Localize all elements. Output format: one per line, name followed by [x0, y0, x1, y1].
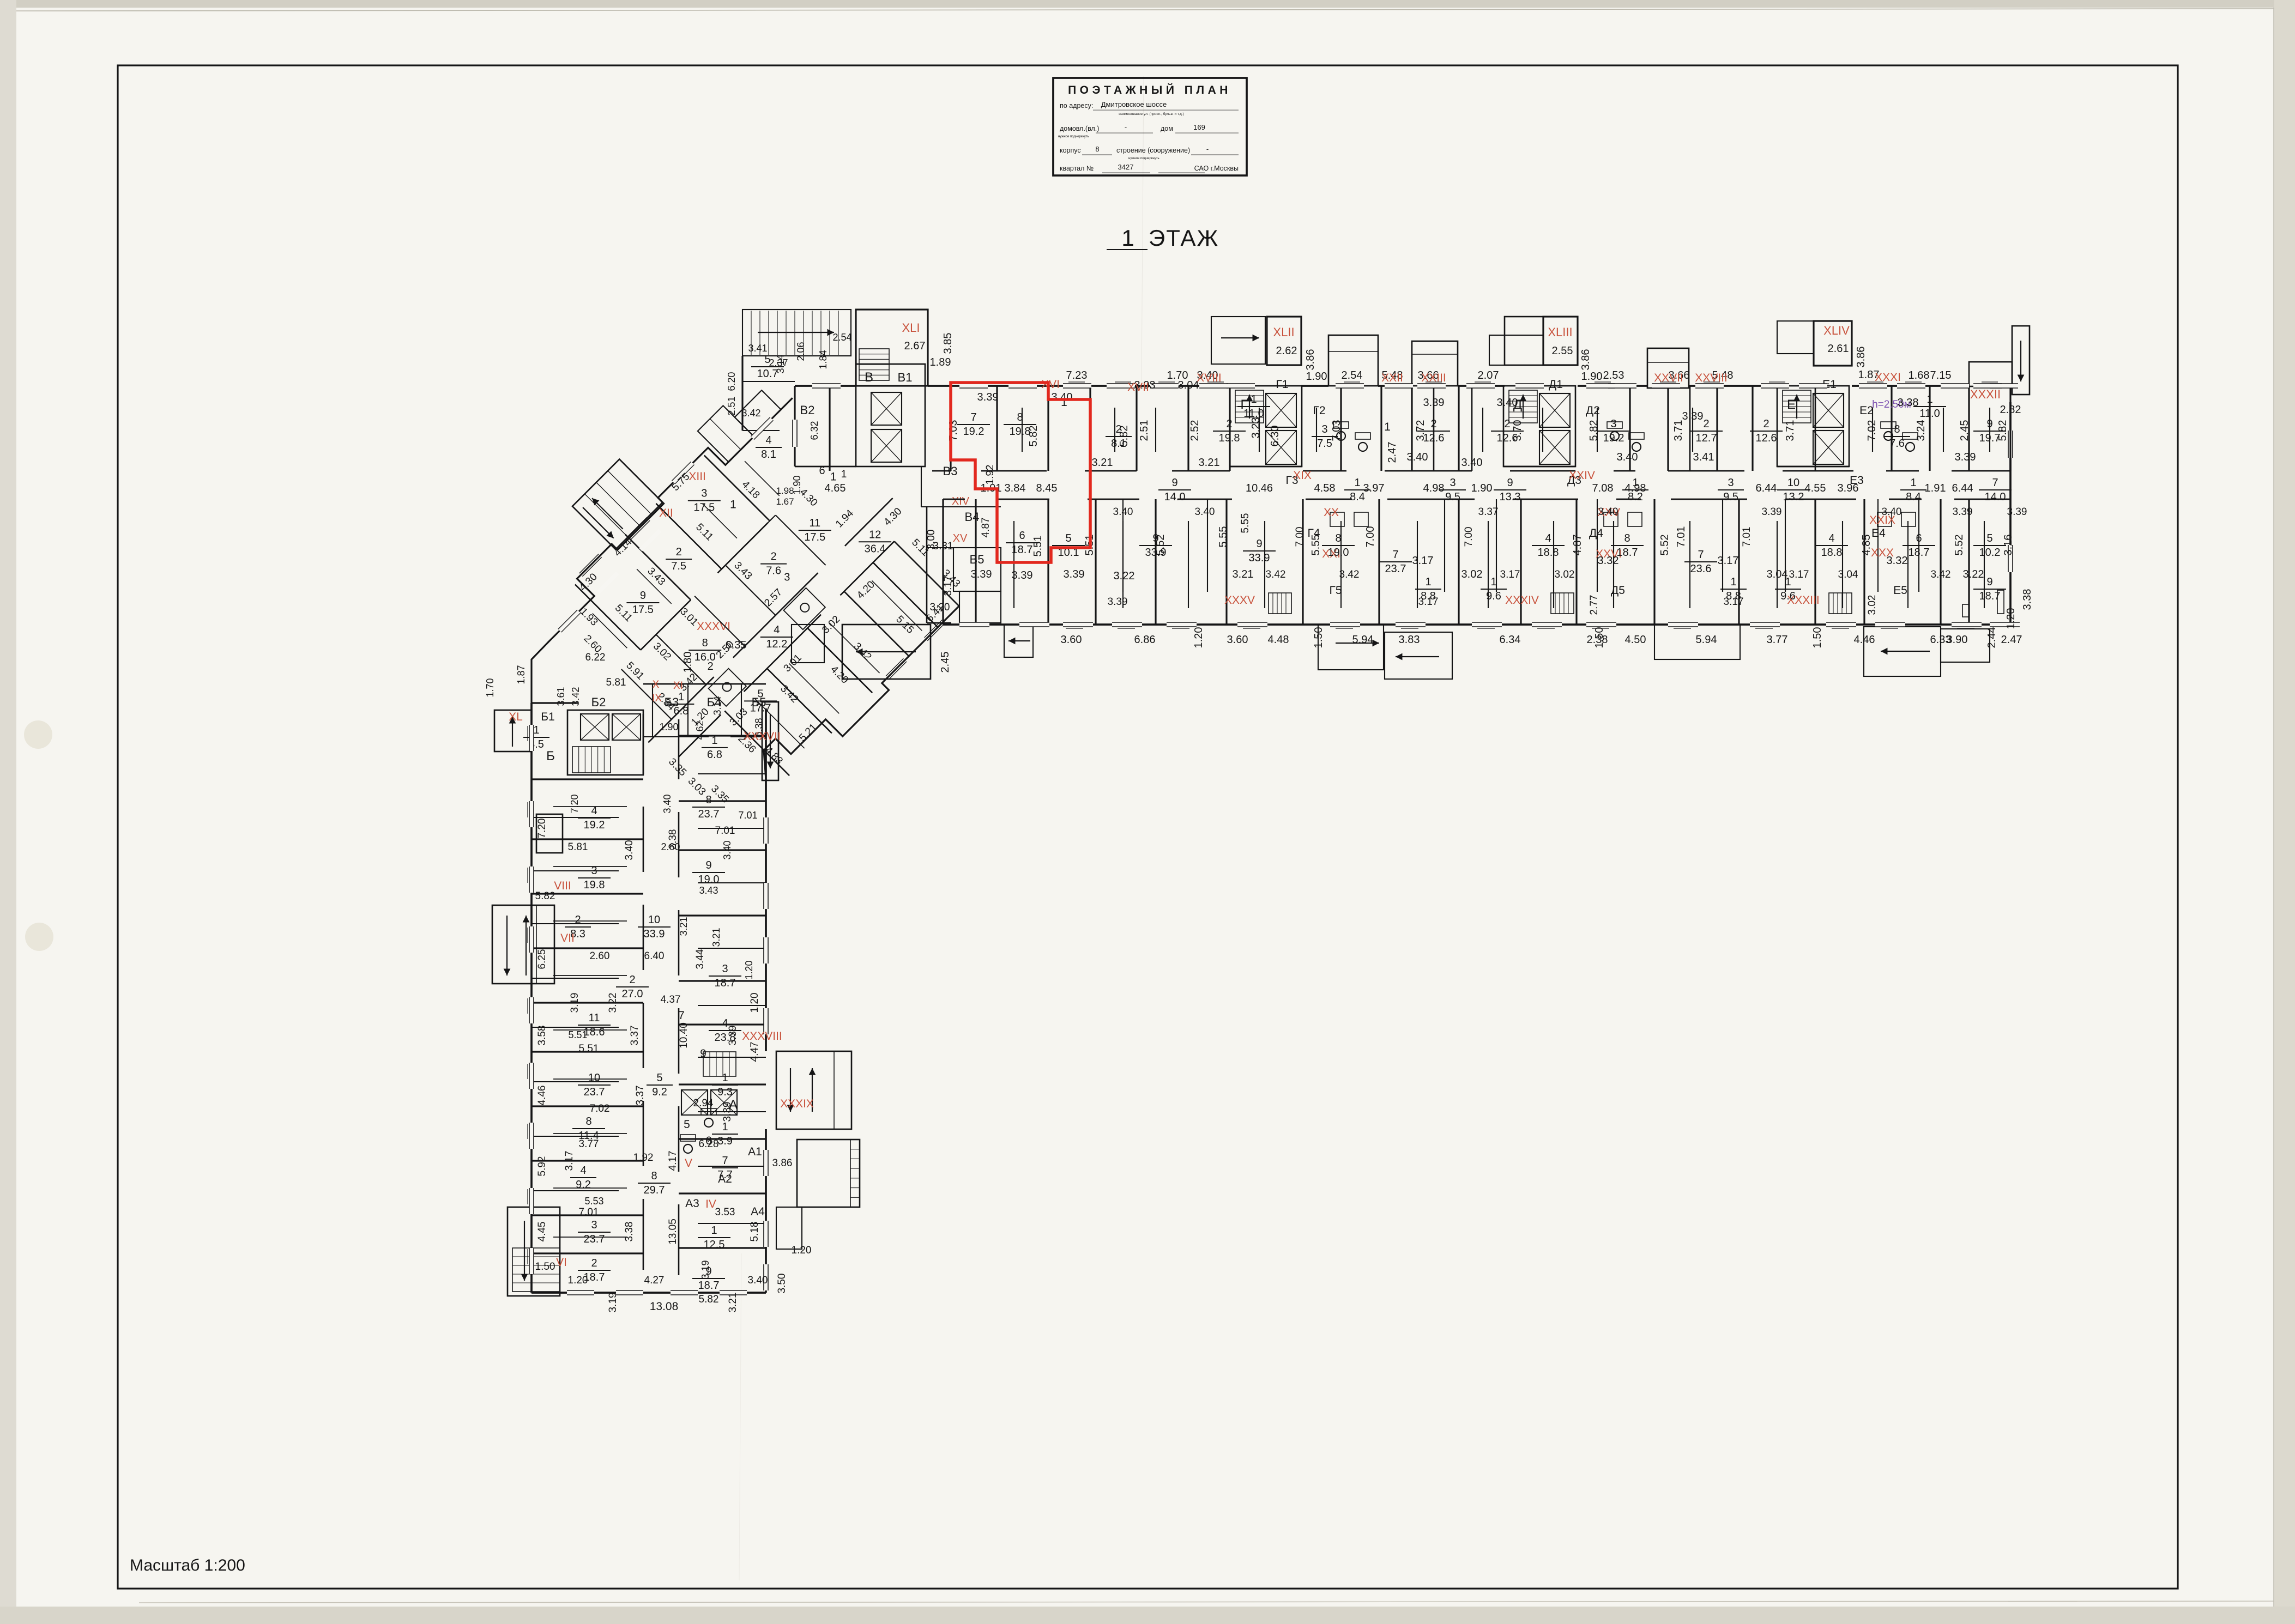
svg-text:5.52: 5.52	[1659, 535, 1671, 556]
svg-text:9: 9	[705, 859, 711, 871]
svg-text:IV: IV	[705, 1198, 716, 1210]
svg-text:5.55: 5.55	[1240, 513, 1251, 534]
svg-text:3.77: 3.77	[579, 1138, 599, 1150]
svg-text:5: 5	[684, 1118, 690, 1131]
svg-text:5.81: 5.81	[606, 677, 626, 688]
svg-text:1.50: 1.50	[1593, 627, 1605, 649]
svg-text:XL: XL	[509, 711, 523, 723]
svg-text:4.17: 4.17	[667, 1151, 679, 1171]
svg-text:5.82: 5.82	[1118, 426, 1130, 447]
svg-text:27.0: 27.0	[622, 988, 643, 1000]
svg-text:3.19: 3.19	[569, 993, 581, 1013]
svg-text:3.39: 3.39	[727, 1026, 739, 1046]
svg-text:13.3: 13.3	[1500, 491, 1521, 503]
svg-text:1.67: 1.67	[776, 496, 794, 507]
svg-text:5.82: 5.82	[1588, 420, 1600, 441]
svg-text:1.50: 1.50	[1313, 627, 1325, 649]
svg-text:11.0: 11.0	[1919, 408, 1940, 420]
svg-text:3: 3	[1321, 423, 1327, 435]
svg-text:3.17: 3.17	[1724, 596, 1744, 608]
svg-text:4.85: 4.85	[1861, 535, 1873, 556]
svg-text:2: 2	[1703, 418, 1709, 430]
svg-text:7: 7	[970, 411, 976, 423]
svg-text:1: 1	[1121, 225, 1134, 251]
svg-text:3.40: 3.40	[1497, 397, 1518, 409]
svg-text:В: В	[865, 370, 873, 385]
svg-text:1: 1	[1354, 477, 1360, 489]
svg-text:-: -	[1125, 123, 1127, 131]
svg-text:8.2: 8.2	[1628, 491, 1643, 503]
svg-text:5: 5	[1986, 532, 1992, 544]
svg-text:3.40: 3.40	[1598, 506, 1618, 518]
svg-text:3.21: 3.21	[678, 917, 689, 936]
svg-text:3.40: 3.40	[1407, 451, 1428, 463]
svg-text:12.5: 12.5	[704, 1239, 725, 1251]
svg-text:5.81: 5.81	[568, 841, 588, 853]
svg-text:6.8: 6.8	[707, 749, 722, 761]
svg-text:3.39: 3.39	[1108, 596, 1128, 608]
svg-text:5.82: 5.82	[699, 1294, 719, 1305]
svg-text:Г5: Г5	[1329, 584, 1342, 597]
svg-text:Дмитровское шоссе: Дмитровское шоссе	[1101, 100, 1167, 108]
svg-text:18.7: 18.7	[1979, 590, 2001, 602]
svg-text:9.5: 9.5	[1445, 491, 1460, 503]
svg-text:1: 1	[1730, 576, 1736, 588]
svg-text:1.92: 1.92	[633, 1152, 654, 1164]
svg-text:2: 2	[629, 974, 635, 986]
svg-text:7: 7	[678, 1009, 685, 1022]
svg-text:18.7: 18.7	[698, 1280, 720, 1292]
svg-text:1: 1	[722, 1121, 728, 1133]
svg-text:А1: А1	[748, 1146, 762, 1158]
svg-text:7.15: 7.15	[1930, 369, 1952, 381]
svg-text:1.92: 1.92	[985, 465, 996, 485]
svg-text:3: 3	[784, 571, 790, 583]
svg-text:3.17: 3.17	[1412, 555, 1434, 567]
svg-text:4.27: 4.27	[644, 1275, 665, 1286]
svg-text:2.45: 2.45	[1959, 420, 1971, 441]
svg-text:XXII: XXII	[1381, 372, 1403, 384]
svg-text:2.61: 2.61	[1828, 343, 1849, 355]
svg-text:6.25: 6.25	[536, 949, 548, 969]
svg-text:6.32: 6.32	[809, 421, 820, 440]
svg-text:1.50: 1.50	[1811, 627, 1823, 649]
svg-text:19.8: 19.8	[1219, 432, 1240, 444]
svg-text:Б: Б	[546, 749, 555, 763]
svg-text:17.5: 17.5	[693, 502, 715, 514]
svg-text:7.08: 7.08	[1592, 482, 1614, 494]
svg-text:Е: Е	[1787, 397, 1796, 412]
svg-text:3.40: 3.40	[1617, 451, 1638, 463]
svg-text:3.40: 3.40	[1461, 457, 1483, 469]
svg-text:1: 1	[711, 1225, 717, 1237]
svg-text:7.5: 7.5	[671, 560, 686, 572]
svg-text:3: 3	[722, 963, 728, 975]
svg-text:4.87: 4.87	[1572, 535, 1584, 556]
svg-text:XIX: XIX	[1293, 469, 1312, 482]
svg-text:5.94: 5.94	[1352, 634, 1374, 646]
svg-text:XVIII: XVIII	[1197, 372, 1222, 384]
svg-text:Д4: Д4	[1589, 527, 1603, 540]
svg-text:1.20: 1.20	[2005, 608, 2017, 629]
svg-text:8: 8	[702, 637, 708, 649]
svg-text:9: 9	[1171, 477, 1177, 489]
svg-text:7.00: 7.00	[1294, 527, 1306, 547]
svg-text:по адресу:: по адресу:	[1060, 102, 1093, 110]
svg-text:1: 1	[830, 471, 837, 483]
svg-text:9.6: 9.6	[1780, 590, 1796, 602]
svg-text:7.01: 7.01	[579, 1207, 599, 1218]
svg-text:3.40: 3.40	[1113, 506, 1133, 518]
svg-text:5.52: 5.52	[1953, 535, 1965, 556]
svg-text:7: 7	[1698, 549, 1704, 561]
svg-text:4.47: 4.47	[749, 1042, 760, 1062]
svg-text:3.17: 3.17	[1418, 596, 1439, 608]
svg-text:В4: В4	[965, 510, 980, 524]
svg-text:1.20: 1.20	[744, 960, 754, 979]
svg-text:2: 2	[591, 1257, 597, 1269]
svg-text:Б5: Б5	[752, 695, 766, 709]
svg-text:6.44: 6.44	[1756, 482, 1777, 494]
svg-text:1.50: 1.50	[535, 1261, 555, 1272]
svg-text:10: 10	[1787, 477, 1799, 489]
svg-text:3: 3	[701, 488, 707, 500]
svg-text:2.67: 2.67	[904, 340, 926, 352]
svg-text:4.98: 4.98	[1423, 482, 1445, 494]
svg-text:2: 2	[1430, 418, 1436, 430]
svg-text:5: 5	[656, 1072, 662, 1084]
svg-text:9.5: 9.5	[1723, 491, 1738, 503]
svg-text:В1: В1	[898, 371, 913, 384]
svg-text:3.38: 3.38	[1898, 397, 1919, 409]
svg-text:3.37: 3.37	[629, 1026, 641, 1046]
svg-text:VI: VI	[556, 1256, 567, 1269]
svg-text:3.21: 3.21	[711, 928, 722, 947]
svg-text:13.08: 13.08	[650, 1300, 679, 1313]
svg-text:Е4: Е4	[1871, 527, 1886, 540]
svg-text:5.52: 5.52	[1155, 535, 1167, 556]
svg-text:4: 4	[591, 805, 597, 817]
svg-text:2.54: 2.54	[1342, 369, 1363, 381]
svg-text:5.18: 5.18	[749, 1222, 760, 1242]
svg-text:3.50: 3.50	[776, 1274, 788, 1294]
svg-text:В5: В5	[970, 553, 985, 566]
svg-text:нужное подчеркнуть: нужное подчеркнуть	[1128, 157, 1159, 160]
svg-text:4.65: 4.65	[825, 482, 846, 494]
svg-text:3.39: 3.39	[1953, 506, 1973, 518]
svg-text:7.5: 7.5	[1317, 438, 1332, 450]
svg-text:3: 3	[591, 865, 597, 877]
svg-text:3.38: 3.38	[624, 1222, 635, 1242]
svg-text:3.38: 3.38	[2021, 589, 2033, 610]
svg-text:3.39: 3.39	[1423, 397, 1445, 409]
svg-text:9: 9	[1986, 418, 1992, 430]
svg-text:ПОЭТАЖНЫЙ ПЛАН: ПОЭТАЖНЫЙ ПЛАН	[1068, 83, 1231, 96]
svg-text:7.6: 7.6	[766, 565, 781, 577]
svg-text:33.9: 33.9	[644, 928, 665, 940]
svg-text:3.21: 3.21	[1233, 568, 1254, 580]
svg-text:23.7: 23.7	[698, 808, 720, 820]
svg-text:3.41: 3.41	[1693, 451, 1714, 463]
svg-text:3.71: 3.71	[1784, 420, 1796, 441]
svg-text:12.6: 12.6	[1756, 432, 1777, 444]
svg-text:3: 3	[1610, 418, 1616, 430]
svg-text:6: 6	[1019, 530, 1025, 542]
svg-text:3.9: 3.9	[717, 1135, 733, 1147]
svg-text:3.85: 3.85	[942, 333, 954, 354]
svg-text:3.21: 3.21	[1092, 457, 1113, 469]
svg-text:23.7: 23.7	[1385, 563, 1406, 575]
svg-text:3.32: 3.32	[1887, 555, 1908, 567]
svg-text:2.51: 2.51	[726, 396, 737, 415]
svg-text:3.39: 3.39	[1955, 451, 1976, 463]
svg-text:1.89: 1.89	[930, 356, 951, 368]
svg-text:4.46: 4.46	[1854, 634, 1875, 646]
svg-text:2.54: 2.54	[832, 332, 851, 343]
svg-text:5.55: 5.55	[1217, 526, 1229, 548]
svg-text:3.17: 3.17	[1500, 569, 1520, 580]
svg-text:XXXIV: XXXIV	[1505, 594, 1539, 607]
svg-text:3: 3	[1450, 477, 1455, 489]
svg-text:7.02: 7.02	[1866, 420, 1878, 441]
svg-text:8.4: 8.4	[1906, 491, 1921, 503]
svg-text:2.55: 2.55	[1552, 345, 1573, 357]
svg-text:6.34: 6.34	[1500, 634, 1521, 646]
svg-text:14.0: 14.0	[1985, 491, 2006, 503]
svg-text:7.20: 7.20	[569, 794, 580, 813]
svg-text:18.7: 18.7	[1012, 544, 1033, 556]
svg-text:1.90: 1.90	[1471, 482, 1493, 494]
svg-text:5.51: 5.51	[579, 1043, 599, 1055]
svg-text:6.40: 6.40	[644, 950, 665, 962]
svg-text:1: 1	[1384, 421, 1391, 433]
svg-text:2: 2	[676, 546, 682, 558]
svg-text:3.24: 3.24	[1915, 420, 1927, 441]
svg-text:1: 1	[533, 724, 539, 736]
svg-text:А3: А3	[685, 1197, 699, 1210]
svg-text:3.97: 3.97	[1363, 482, 1385, 494]
svg-text:7.03: 7.03	[1331, 420, 1343, 441]
svg-text:2.77: 2.77	[1589, 595, 1600, 615]
svg-text:3427: 3427	[1118, 163, 1134, 171]
svg-text:6.44: 6.44	[1952, 482, 1973, 494]
svg-text:строение (сооружение): строение (сооружение)	[1116, 147, 1190, 154]
svg-text:Б1: Б1	[541, 711, 554, 723]
svg-text:19.2: 19.2	[1603, 432, 1624, 444]
svg-text:А4: А4	[751, 1205, 765, 1218]
svg-text:XLIV: XLIV	[1823, 324, 1850, 337]
svg-text:19.2: 19.2	[584, 819, 605, 831]
svg-text:7.20: 7.20	[536, 819, 548, 839]
svg-text:1.68: 1.68	[1909, 369, 1930, 381]
svg-text:6.30: 6.30	[1269, 426, 1281, 447]
svg-text:18.7: 18.7	[1617, 547, 1638, 559]
svg-text:6.86: 6.86	[1134, 634, 1156, 646]
svg-text:3.02: 3.02	[1867, 595, 1878, 615]
svg-text:XI: XI	[673, 680, 683, 692]
svg-text:8: 8	[1894, 423, 1900, 435]
svg-text:1: 1	[1632, 477, 1638, 489]
svg-text:14.0: 14.0	[1164, 491, 1186, 503]
svg-text:домовл.(вл.): домовл.(вл.)	[1060, 125, 1099, 132]
svg-text:4.58: 4.58	[1314, 482, 1336, 494]
svg-text:11: 11	[809, 517, 820, 529]
svg-text:10.2: 10.2	[1979, 547, 2001, 559]
svg-text:3.39: 3.39	[971, 568, 992, 580]
svg-text:1: 1	[1490, 576, 1496, 588]
svg-text:Е2: Е2	[1859, 404, 1874, 417]
svg-text:5.51: 5.51	[1032, 536, 1044, 557]
svg-text:3.86: 3.86	[1855, 347, 1867, 368]
svg-text:XXVIII: XXVIII	[1695, 372, 1728, 384]
svg-text:33.9: 33.9	[1249, 552, 1270, 564]
svg-text:2.47: 2.47	[2001, 634, 2022, 646]
svg-text:18.8: 18.8	[1538, 547, 1559, 559]
svg-text:3.39: 3.39	[1012, 569, 1033, 581]
svg-text:23.7: 23.7	[584, 1233, 605, 1245]
svg-text:V: V	[685, 1157, 692, 1169]
svg-text:7.00: 7.00	[1463, 527, 1475, 547]
svg-text:1.20: 1.20	[749, 993, 760, 1013]
svg-text:18.7: 18.7	[1909, 547, 1930, 559]
svg-text:3.02: 3.02	[1461, 568, 1483, 580]
svg-text:1.91: 1.91	[1925, 482, 1946, 494]
svg-text:9: 9	[1256, 538, 1262, 550]
svg-text:18.8: 18.8	[1821, 547, 1843, 559]
svg-text:18.7: 18.7	[715, 977, 736, 989]
svg-text:VIII: VIII	[554, 880, 571, 892]
svg-text:169: 169	[1193, 123, 1205, 131]
svg-text:XXVII: XXVII	[1654, 372, 1683, 384]
svg-text:5.53: 5.53	[584, 1196, 603, 1207]
svg-text:12.2: 12.2	[766, 638, 787, 650]
svg-text:Д5: Д5	[1611, 584, 1625, 597]
svg-text:-: -	[1206, 145, 1209, 153]
svg-text:7: 7	[1992, 477, 1998, 489]
svg-text:3.84: 3.84	[1005, 482, 1026, 494]
svg-text:4: 4	[1545, 532, 1551, 544]
svg-text:1.90: 1.90	[1306, 371, 1327, 383]
svg-text:XII: XII	[659, 507, 673, 519]
svg-text:10: 10	[588, 1072, 600, 1084]
svg-text:8: 8	[651, 1170, 657, 1182]
svg-text:дом: дом	[1161, 125, 1173, 132]
svg-text:8: 8	[1335, 532, 1341, 544]
svg-text:VII: VII	[560, 932, 575, 944]
svg-text:3.37: 3.37	[635, 1086, 646, 1106]
svg-text:8.45: 8.45	[1036, 482, 1058, 494]
svg-text:2.53: 2.53	[1603, 369, 1624, 381]
svg-text:3.77: 3.77	[1767, 634, 1788, 646]
svg-text:6: 6	[1916, 532, 1922, 544]
svg-text:3.04: 3.04	[1767, 568, 1788, 580]
svg-text:4.55: 4.55	[1805, 482, 1826, 494]
svg-text:1.20: 1.20	[1193, 627, 1205, 649]
svg-text:3.72: 3.72	[1415, 420, 1427, 441]
svg-text:10: 10	[648, 914, 660, 926]
svg-text:3.60: 3.60	[1227, 634, 1248, 646]
svg-text:наименование ул. (просп., буль: наименование ул. (просп., бульв. и т.д.)	[1119, 112, 1184, 116]
svg-text:1.70: 1.70	[485, 678, 496, 697]
svg-text:8: 8	[1095, 145, 1099, 153]
svg-text:1: 1	[841, 469, 847, 480]
svg-text:5.82: 5.82	[1997, 420, 2009, 441]
svg-text:Б3: Б3	[665, 695, 679, 709]
svg-text:XXIII: XXIII	[1421, 372, 1446, 384]
svg-text:XV: XV	[953, 532, 968, 544]
svg-text:XXXVIII: XXXVIII	[742, 1030, 782, 1043]
svg-text:Д1: Д1	[1549, 378, 1563, 391]
svg-text:XLI: XLI	[902, 321, 920, 335]
svg-text:5.51: 5.51	[568, 1029, 587, 1040]
svg-text:2: 2	[1504, 418, 1510, 430]
svg-text:XXIV: XXIV	[1569, 469, 1595, 482]
svg-text:3.22: 3.22	[1114, 570, 1135, 582]
svg-text:3.86: 3.86	[1580, 349, 1592, 371]
svg-text:4: 4	[1828, 532, 1834, 544]
svg-text:XVI: XVI	[1041, 378, 1060, 391]
svg-text:5.82: 5.82	[1028, 426, 1040, 447]
svg-text:3.17: 3.17	[1789, 569, 1809, 580]
svg-text:8.4: 8.4	[1350, 491, 1365, 503]
svg-text:3.16: 3.16	[2002, 535, 2014, 556]
svg-text:4.45: 4.45	[536, 1222, 548, 1242]
svg-text:7.7: 7.7	[717, 1169, 733, 1181]
svg-text:7.01: 7.01	[715, 825, 735, 837]
svg-text:3: 3	[1728, 477, 1734, 489]
svg-text:3.70: 3.70	[1512, 420, 1524, 441]
svg-text:2.47: 2.47	[1386, 442, 1398, 463]
svg-text:3.40: 3.40	[624, 840, 635, 861]
svg-text:17.5: 17.5	[632, 604, 654, 616]
svg-text:3.42: 3.42	[1339, 569, 1360, 580]
svg-text:3.19: 3.19	[700, 1260, 711, 1279]
svg-text:3.19: 3.19	[607, 1293, 619, 1313]
svg-text:4.50: 4.50	[1625, 634, 1646, 646]
svg-text:7.01: 7.01	[738, 810, 757, 821]
svg-text:1: 1	[1425, 576, 1431, 588]
svg-text:19.2: 19.2	[963, 426, 985, 438]
svg-text:2: 2	[771, 551, 777, 563]
svg-text:4.46: 4.46	[536, 1086, 548, 1106]
svg-text:7.00: 7.00	[1364, 526, 1376, 548]
svg-text:3.41: 3.41	[748, 343, 767, 354]
svg-text:23.7: 23.7	[584, 1086, 605, 1098]
svg-text:1: 1	[730, 498, 736, 511]
svg-text:1: 1	[678, 691, 684, 703]
svg-text:Б4: Б4	[707, 695, 722, 709]
svg-text:ЭТАЖ: ЭТАЖ	[1149, 225, 1219, 251]
svg-text:9: 9	[1507, 477, 1513, 489]
svg-text:7.23: 7.23	[1066, 369, 1088, 381]
svg-text:29.7: 29.7	[644, 1184, 665, 1196]
svg-text:2: 2	[1226, 418, 1232, 430]
svg-text:корпус: корпус	[1060, 147, 1081, 154]
svg-text:2.60: 2.60	[661, 841, 680, 852]
svg-text:3.39: 3.39	[977, 391, 999, 403]
svg-text:1.98: 1.98	[776, 486, 794, 496]
svg-text:XX: XX	[1324, 506, 1339, 519]
svg-text:3.40: 3.40	[1882, 506, 1902, 518]
svg-text:3.60: 3.60	[1061, 634, 1082, 646]
svg-text:5.94: 5.94	[1696, 634, 1717, 646]
svg-text:5.82: 5.82	[535, 890, 555, 902]
svg-text:3.40: 3.40	[1195, 506, 1215, 518]
svg-text:7.02: 7.02	[590, 1103, 610, 1114]
svg-text:XXXVII: XXXVII	[744, 730, 781, 743]
svg-text:3.17: 3.17	[564, 1151, 575, 1171]
svg-text:3.42: 3.42	[741, 408, 760, 419]
